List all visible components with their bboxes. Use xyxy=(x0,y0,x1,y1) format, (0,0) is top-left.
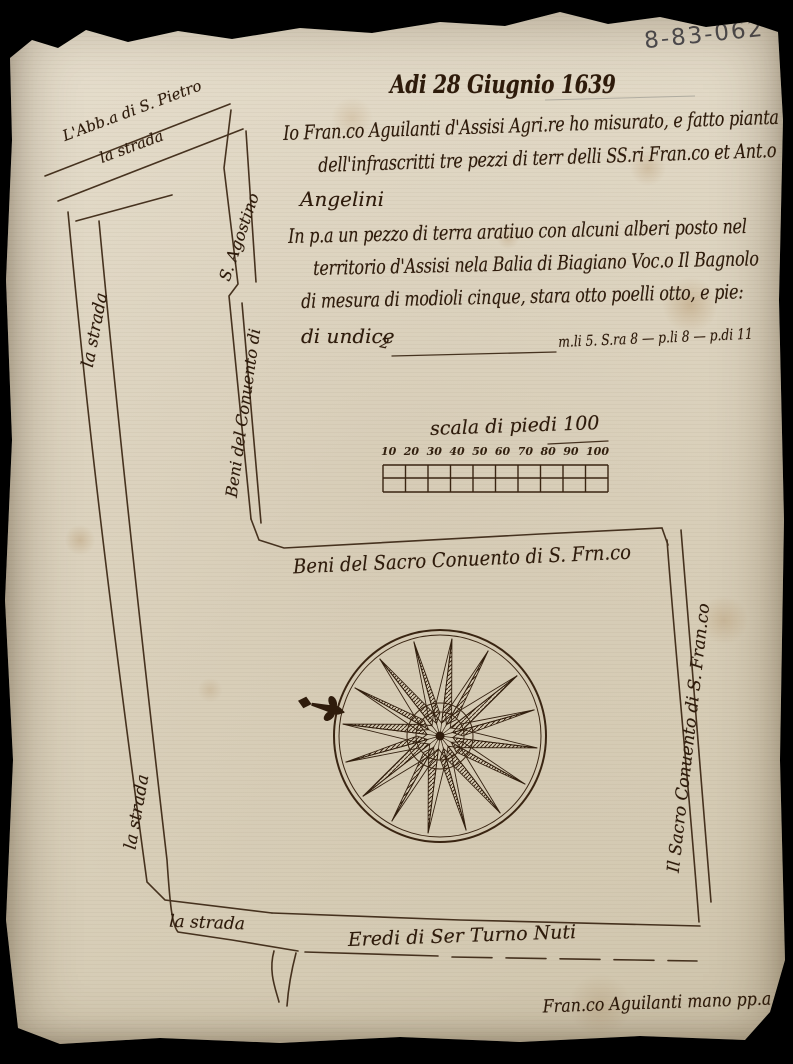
compass-rose xyxy=(294,630,546,842)
paper-sheet: 8-83-062 Adi 28 Giugnio 1639 Io Fran.co … xyxy=(0,0,793,1064)
scale-tick: 50 xyxy=(472,445,487,458)
scale-ticks: 10 20 30 40 50 60 70 80 90 100 xyxy=(381,445,609,458)
leader-line xyxy=(392,352,556,356)
scale-bar xyxy=(383,465,608,492)
road-bottom-dashes xyxy=(452,957,697,961)
scale-tick: 70 xyxy=(518,445,533,458)
scale-label-underline xyxy=(548,441,608,444)
scale-tick: 80 xyxy=(540,445,555,458)
date-heading: Adi 28 Giugnio 1639 xyxy=(390,70,616,99)
intro-line-3: Angelini xyxy=(300,187,384,211)
scale-tick: 10 xyxy=(381,445,396,458)
scale-tick: 30 xyxy=(427,445,442,458)
road-fork-left xyxy=(272,951,279,1002)
label-road-bottom: la strada xyxy=(169,912,245,935)
scale-tick: 40 xyxy=(449,445,464,458)
road-fork-right xyxy=(287,953,296,1006)
scale-tick: 90 xyxy=(563,445,578,458)
road-bottom-line xyxy=(305,952,438,956)
scale-tick: 100 xyxy=(586,445,609,458)
scale-tick: 60 xyxy=(495,445,510,458)
scale-tick: 20 xyxy=(404,445,419,458)
scanned-document: 8-83-062 Adi 28 Giugnio 1639 Io Fran.co … xyxy=(0,0,793,1064)
road-top-edge-line xyxy=(76,195,172,221)
